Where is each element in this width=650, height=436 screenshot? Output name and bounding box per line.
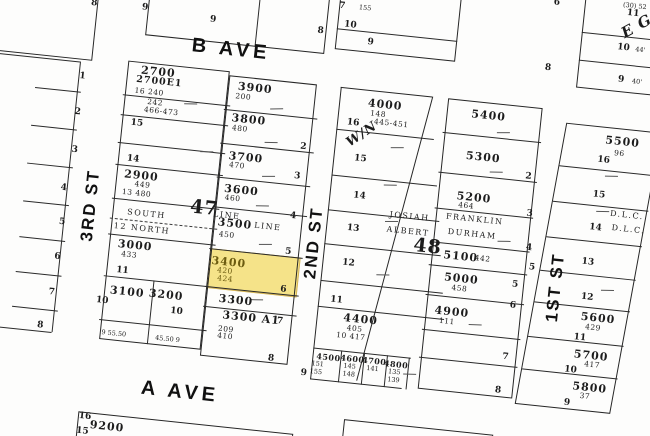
lot-number: 2: [300, 143, 307, 153]
dimension-squiggle: [605, 176, 618, 177]
parcel-value: 410: [217, 332, 234, 341]
lot-number: 13: [346, 224, 359, 234]
parcel-value: 148: [342, 370, 355, 378]
dimension-squiggle: [596, 211, 609, 212]
parcel-value: 155: [309, 368, 322, 376]
dimension-squiggle: [391, 147, 404, 148]
plat-map-canvas: B AVE A AVE 3RD ST 2ND ST 1ST ST 47 48 8…: [0, 0, 650, 436]
lot-number: 15: [130, 119, 143, 129]
parcel-9200-number: 9200: [89, 419, 125, 434]
lot-number: 5: [285, 248, 292, 258]
block-edge-west: [52, 62, 81, 333]
parcel-value: 458: [451, 284, 468, 293]
plat-map-viewport[interactable]: B AVE A AVE 3RD ST 2ND ST 1ST ST 47 48 8…: [0, 0, 650, 436]
parcel-value: 433: [121, 250, 138, 259]
lot-line: [19, 236, 65, 242]
lot-number: 3: [294, 172, 301, 182]
lot-line: [27, 163, 73, 169]
lot-number: 15: [76, 427, 89, 436]
lot-number: 7: [48, 288, 55, 298]
lot-number: 10: [344, 20, 357, 30]
parcel-value: 470: [229, 161, 246, 170]
parcel-value: 442: [474, 254, 491, 263]
dimension-squiggle: [384, 185, 397, 186]
lot-number: 6: [509, 301, 516, 311]
parcel-5400-number: 5400: [471, 108, 507, 123]
lot-number: 11: [330, 296, 343, 306]
lot-number: 5: [511, 280, 518, 290]
lot-number: 2: [525, 172, 532, 182]
dimension-squiggle: [376, 274, 389, 275]
lot-number: 16: [597, 156, 610, 166]
lot-number: 9: [367, 38, 374, 48]
lot-number: 10: [95, 296, 108, 306]
parcel-3300-number: 3300: [218, 293, 254, 308]
dimension-squiggle: [270, 108, 283, 109]
parcel-value: 139: [387, 376, 400, 384]
lot-number: 10: [170, 307, 183, 317]
lot-number: 9: [563, 399, 570, 409]
lot-number: 3: [526, 210, 533, 220]
parcel-value: 417: [584, 360, 601, 369]
dimension-squiggle: [184, 103, 197, 104]
dimension-squiggle: [403, 373, 416, 374]
dimension-squiggle: [498, 241, 511, 242]
street-label-a-ave: A AVE: [140, 378, 220, 406]
lot-number: 8: [37, 321, 44, 331]
parcel-5100-number: 5100: [443, 249, 479, 264]
lot-number: 8: [317, 27, 324, 37]
lot-number: 14: [353, 191, 366, 201]
lot-number: 4: [289, 212, 296, 222]
parcel-value: 480: [232, 124, 249, 133]
lot-line: [546, 236, 642, 247]
parcel-value: 429: [585, 323, 602, 332]
lot-line: [12, 306, 58, 312]
lot-number: 7: [339, 2, 346, 12]
lot-number: 7: [276, 317, 283, 327]
dimension-squiggle: [497, 132, 510, 133]
lot-line: [0, 325, 52, 334]
parcel-value: 200: [235, 92, 252, 101]
lot-line: [559, 165, 650, 176]
lot-number: 4: [60, 184, 67, 194]
lot-number: 12: [342, 259, 355, 269]
lot-number: 10: [617, 43, 630, 53]
parcel-value: 464: [458, 201, 475, 210]
dimension-squiggle: [490, 172, 503, 173]
lot-value: 155: [359, 4, 372, 12]
lot-number: 14: [126, 154, 139, 164]
lot-number: 15: [592, 190, 605, 200]
lot-number: 8: [494, 386, 501, 396]
dimension-label: 44': [635, 46, 646, 54]
parcel-value: 96: [614, 149, 625, 158]
lot-number: 10: [564, 365, 577, 375]
lot-number: 9: [617, 75, 624, 85]
parcel-value: 111: [439, 317, 456, 326]
lot-number: 1: [79, 72, 86, 82]
dimension-squiggle: [200, 151, 213, 152]
parcel-3100-number: 3100: [109, 284, 145, 299]
lot-number: 4: [525, 244, 532, 254]
lot-number: 3: [71, 146, 78, 156]
lot-number: 8: [91, 0, 98, 8]
lot-number: 14: [589, 223, 602, 233]
street-label-3rd-st: 3RD ST: [78, 168, 102, 242]
lot-number: 2: [74, 108, 81, 118]
lot-number: 16: [346, 118, 359, 128]
parcel-value: 37: [579, 392, 590, 401]
parcel-5500-number: 5500: [605, 134, 641, 149]
dimension-squiggle: [265, 142, 278, 143]
parcel-value: 141: [366, 365, 379, 373]
parcel-value: 450: [218, 230, 235, 239]
lot-line: [35, 87, 81, 93]
parcel-value: 460: [224, 194, 241, 203]
lot-number: 13: [581, 258, 594, 268]
block-number-48: 48: [412, 236, 442, 258]
lot-line: [16, 271, 62, 277]
lot-number: 6: [54, 252, 61, 262]
lot-number: 11: [573, 333, 586, 343]
lot-number: 9: [141, 3, 148, 13]
parcel-value: 424: [217, 274, 234, 283]
dimension-squiggle: [256, 205, 269, 206]
lot-line: [31, 125, 77, 131]
lot-number: 12: [580, 293, 593, 303]
dimension-squiggle: [385, 221, 398, 222]
lot-number: 5: [528, 263, 535, 273]
lot-number: 9: [300, 369, 307, 379]
block-outline-topleft: [0, 0, 101, 61]
dimension-label: 40': [632, 78, 643, 86]
lot-number: 7: [502, 353, 509, 363]
parcel-3200-number: 3200: [148, 288, 184, 303]
dimension-squiggle: [601, 290, 614, 291]
lot-number: 5: [58, 218, 65, 228]
lot-line: [23, 200, 69, 206]
parcel-5300-number: 5300: [465, 150, 501, 165]
lot-number: 6: [553, 0, 560, 8]
lot-number: 11: [116, 266, 129, 276]
dimension-squiggle: [262, 176, 275, 177]
lot-number: 15: [354, 154, 367, 164]
block-outline-bottomright: [338, 419, 493, 436]
lot-number: 8: [267, 354, 274, 364]
lot-number: 6: [280, 285, 287, 295]
lot-number: 8: [544, 64, 551, 74]
dimension-squiggle: [259, 244, 272, 245]
lot-number: 9: [209, 15, 216, 25]
